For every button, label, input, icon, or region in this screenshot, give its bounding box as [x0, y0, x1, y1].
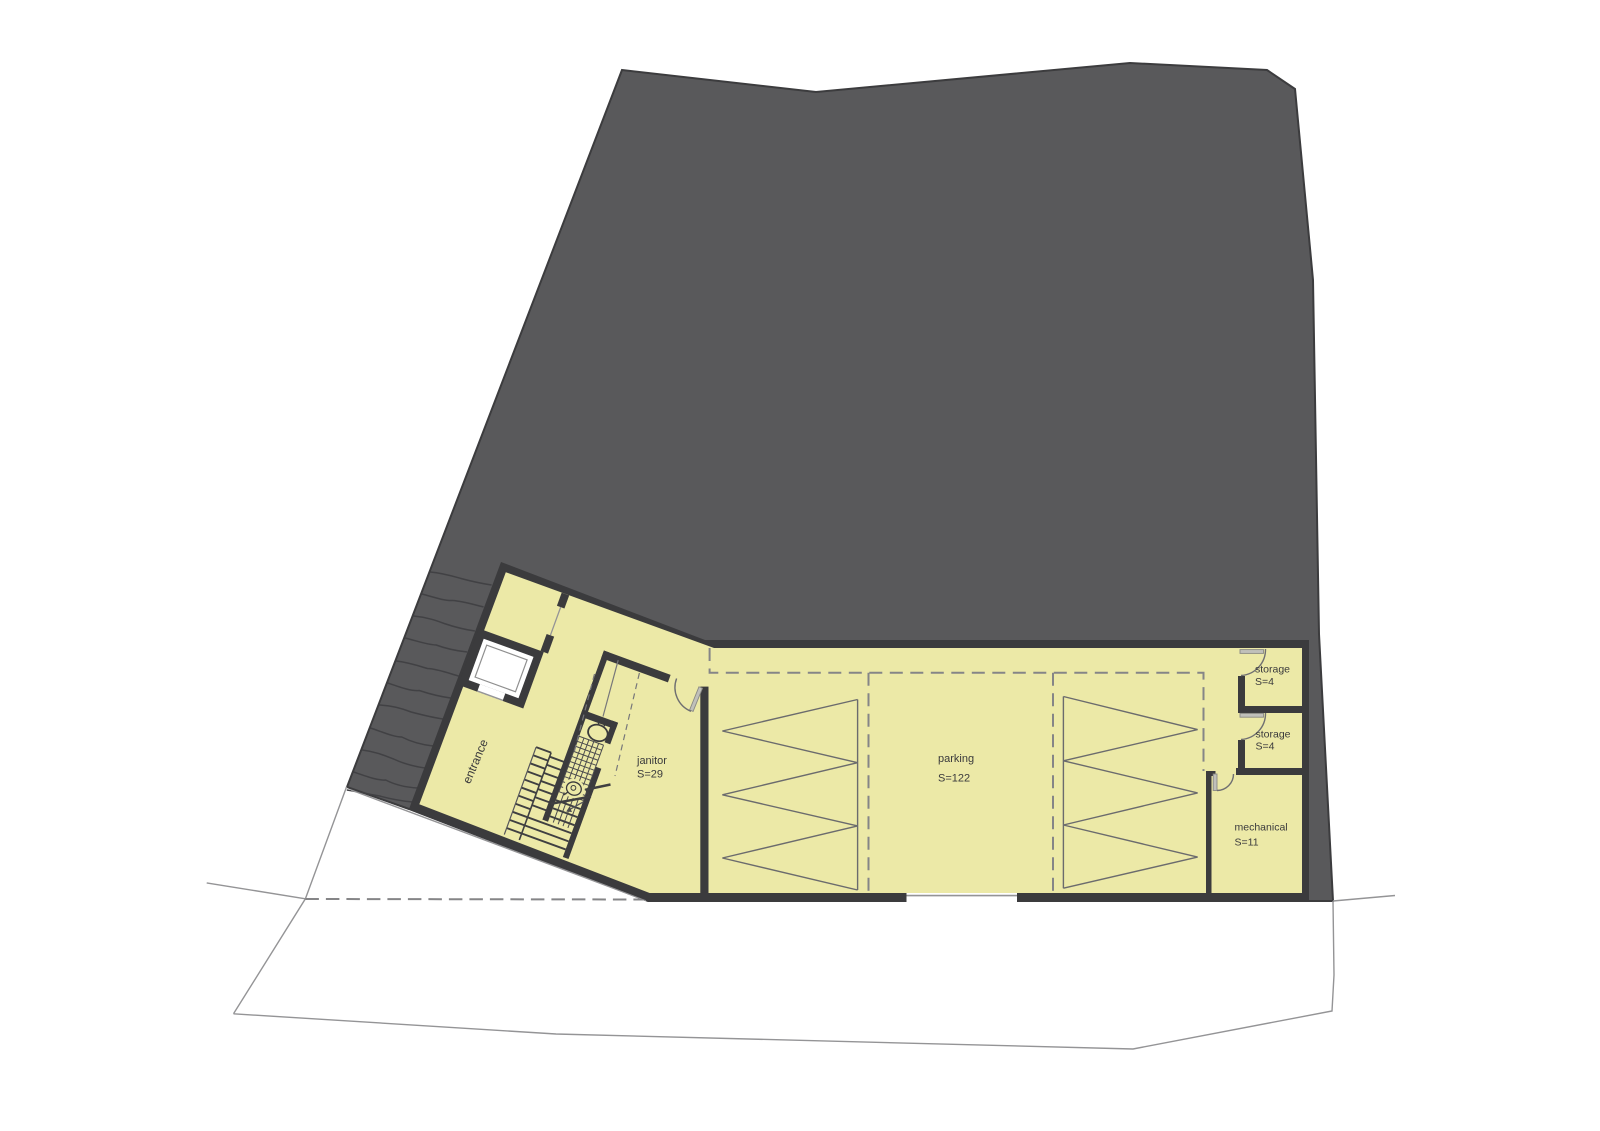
svg-text:S=4: S=4 — [1255, 676, 1274, 688]
svg-text:S=4: S=4 — [1256, 741, 1275, 753]
svg-text:storage: storage — [1255, 664, 1290, 676]
svg-text:parking: parking — [938, 753, 974, 765]
svg-text:mechanical: mechanical — [1235, 822, 1288, 834]
svg-text:S=29: S=29 — [637, 769, 663, 781]
svg-text:janitor: janitor — [636, 755, 667, 767]
svg-text:storage: storage — [1256, 729, 1291, 741]
svg-text:S=122: S=122 — [938, 773, 970, 785]
svg-text:S=11: S=11 — [1235, 837, 1259, 849]
